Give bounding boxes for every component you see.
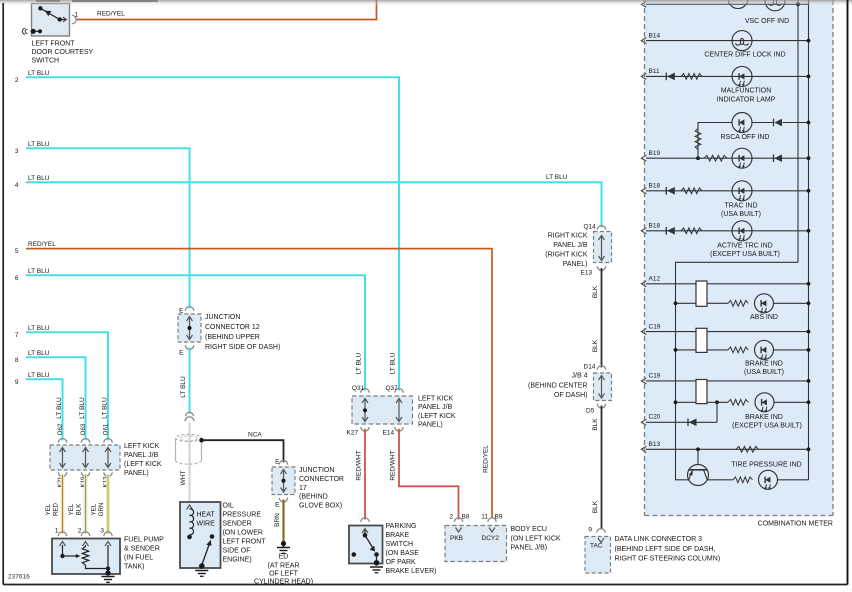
svg-text:GLOVE BOX): GLOVE BOX): [299, 503, 342, 510]
svg-text:9: 9: [15, 379, 19, 386]
svg-text:LT BLU: LT BLU: [546, 174, 568, 181]
svg-text:8: 8: [15, 357, 19, 364]
svg-text:PKB: PKB: [450, 535, 463, 542]
svg-text:BODY ECU: BODY ECU: [511, 526, 547, 533]
svg-text:BLK: BLK: [592, 285, 599, 298]
svg-text:9: 9: [588, 527, 592, 534]
svg-text:B18: B18: [649, 183, 661, 190]
svg-text:E: E: [275, 502, 280, 509]
svg-text:B18: B18: [649, 223, 661, 230]
svg-text:TRAC IND: TRAC IND: [724, 202, 757, 209]
svg-text:(EXCEPT USA BUILT): (EXCEPT USA BUILT): [710, 251, 780, 258]
svg-text:PANEL J/B: PANEL J/B: [553, 242, 588, 249]
svg-text:2: 2: [15, 77, 19, 84]
svg-text:LT BLU: LT BLU: [28, 268, 50, 275]
svg-text:OIL: OIL: [223, 503, 234, 510]
svg-text:TIRE PRESSURE IND: TIRE PRESSURE IND: [731, 462, 801, 469]
svg-text:CONNECTOR 12: CONNECTOR 12: [205, 324, 260, 331]
svg-text:PANEL): PANEL): [563, 261, 588, 268]
svg-text:LEFT FRONT: LEFT FRONT: [32, 40, 76, 47]
svg-text:RSCA OFF IND: RSCA OFF IND: [720, 134, 769, 141]
svg-text:1: 1: [75, 12, 79, 19]
svg-text:5: 5: [15, 248, 19, 255]
svg-text:LT BLU: LT BLU: [56, 397, 63, 419]
svg-text:BRAKE: BRAKE: [386, 532, 410, 539]
svg-text:O63: O63: [80, 423, 87, 435]
svg-text:LT BLU: LT BLU: [28, 175, 50, 182]
svg-text:INDICATOR LAMP: INDICATOR LAMP: [717, 96, 776, 103]
svg-text:2: 2: [449, 514, 453, 521]
svg-text:D5: D5: [586, 408, 595, 415]
svg-text:GRN: GRN: [98, 503, 105, 517]
svg-text:LEFT FRONT: LEFT FRONT: [223, 539, 267, 546]
svg-text:(ON LOWER: (ON LOWER: [223, 530, 263, 537]
svg-text:(IN FUEL: (IN FUEL: [124, 555, 153, 562]
svg-text:LT BLU: LT BLU: [356, 352, 363, 374]
svg-text:E: E: [275, 459, 280, 466]
svg-text:TANK): TANK): [124, 564, 144, 571]
svg-text:Q31: Q31: [352, 385, 365, 392]
svg-text:Q37: Q37: [386, 385, 399, 392]
svg-text:SIDE OF: SIDE OF: [223, 548, 251, 555]
svg-text:O61: O61: [103, 423, 110, 435]
svg-text:SENDER: SENDER: [223, 521, 252, 528]
svg-text:LT BLU: LT BLU: [79, 397, 86, 419]
svg-text:RED/YEL: RED/YEL: [483, 445, 490, 473]
svg-text:BRAKE IND: BRAKE IND: [745, 361, 783, 368]
svg-text:BLK: BLK: [592, 500, 599, 513]
svg-text:(LEFT KICK: (LEFT KICK: [124, 461, 162, 468]
svg-text:DOOR COURTESY: DOOR COURTESY: [32, 49, 94, 56]
svg-text:TAC: TAC: [590, 543, 603, 550]
svg-text:2: 2: [78, 528, 82, 535]
svg-text:WIRE: WIRE: [197, 521, 216, 528]
svg-text:LEFT KICK: LEFT KICK: [124, 443, 160, 450]
svg-text:ACTIVE TRC IND: ACTIVE TRC IND: [717, 242, 773, 249]
svg-text:A12: A12: [649, 276, 661, 283]
svg-text:PRESSURE: PRESSURE: [223, 512, 262, 519]
svg-text:LT BLU: LT BLU: [28, 325, 50, 332]
svg-text:E13: E13: [581, 270, 593, 277]
svg-text:(RIGHT KICK: (RIGHT KICK: [545, 252, 588, 259]
svg-text:CENTER DIFF LOCK IND: CENTER DIFF LOCK IND: [704, 52, 785, 59]
svg-text:COMBINATION METER: COMBINATION METER: [758, 521, 833, 528]
svg-text:PANEL): PANEL): [124, 470, 149, 477]
svg-text:4: 4: [15, 182, 19, 189]
svg-text:(AT REAR: (AT REAR: [267, 562, 299, 569]
svg-text:LT BLU: LT BLU: [180, 376, 187, 398]
svg-text:11: 11: [481, 514, 488, 521]
svg-text:RED/YEL: RED/YEL: [97, 11, 125, 18]
svg-text:O62: O62: [57, 423, 64, 435]
svg-text:LT BLU: LT BLU: [28, 141, 50, 148]
svg-text:BRAKE LEVER): BRAKE LEVER): [386, 568, 437, 575]
svg-text:(USA BUILT): (USA BUILT): [721, 211, 761, 218]
svg-text:(EXCEPT USA BUILT): (EXCEPT USA BUILT): [732, 423, 802, 430]
svg-text:LT BLU: LT BLU: [28, 70, 50, 77]
svg-text:RIGHT KICK: RIGHT KICK: [548, 233, 588, 240]
svg-text:OF PARK: OF PARK: [386, 559, 417, 566]
svg-text:PANEL): PANEL): [418, 422, 443, 429]
svg-text:B14: B14: [649, 32, 661, 39]
svg-text:SWITCH: SWITCH: [32, 57, 60, 64]
svg-text:JUNCTION: JUNCTION: [299, 467, 334, 474]
svg-text:LEFT KICK: LEFT KICK: [418, 396, 454, 403]
svg-text:HEAT: HEAT: [197, 512, 216, 519]
svg-text:C19: C19: [649, 373, 661, 380]
svg-text:WHT: WHT: [180, 471, 187, 486]
svg-text:3: 3: [100, 528, 104, 535]
svg-text:E14: E14: [383, 430, 395, 437]
svg-text:ABS IND: ABS IND: [750, 314, 778, 321]
svg-text:BRN: BRN: [274, 513, 281, 527]
svg-text:FUEL PUMP: FUEL PUMP: [124, 537, 164, 544]
svg-text:ED: ED: [279, 554, 289, 561]
svg-text:6: 6: [15, 275, 19, 282]
svg-text:OF DASH): OF DASH): [554, 392, 587, 399]
svg-text:(BEHIND LEFT SIDE OF DASH,: (BEHIND LEFT SIDE OF DASH,: [615, 546, 716, 553]
svg-text:RED/WHT: RED/WHT: [356, 450, 363, 480]
svg-text:B13: B13: [649, 441, 661, 448]
svg-text:Q14: Q14: [584, 224, 597, 231]
svg-text:(BEHIND CENTER: (BEHIND CENTER: [528, 383, 588, 390]
svg-text:E: E: [179, 350, 184, 357]
svg-text:(BEHIND: (BEHIND: [299, 494, 328, 501]
svg-text:(ON BASE: (ON BASE: [386, 550, 420, 557]
svg-text:LT BLU: LT BLU: [28, 350, 50, 357]
svg-text:B19: B19: [649, 150, 661, 157]
svg-text:& SENDER: & SENDER: [124, 546, 160, 553]
svg-text:J/B 4: J/B 4: [572, 373, 588, 380]
svg-text:3: 3: [15, 148, 19, 155]
svg-text:PARKING: PARKING: [386, 523, 417, 530]
svg-text:PANEL J/B: PANEL J/B: [124, 452, 159, 459]
svg-text:YEL: YEL: [45, 503, 52, 515]
svg-text:C20: C20: [649, 414, 661, 421]
svg-text:SWITCH: SWITCH: [386, 541, 414, 548]
svg-text:K27: K27: [347, 430, 359, 437]
svg-text:BLK: BLK: [76, 503, 83, 516]
svg-text:ENGINE): ENGINE): [223, 557, 252, 564]
svg-text:RIGHT OF STEERING COLUMN): RIGHT OF STEERING COLUMN): [615, 556, 721, 563]
svg-text:RIGHT SIDE OF DASH): RIGHT SIDE OF DASH): [205, 344, 280, 351]
svg-text:PANEL J/B): PANEL J/B): [511, 545, 548, 552]
svg-text:DATA LINK CONNECTOR 3: DATA LINK CONNECTOR 3: [615, 536, 703, 543]
svg-text:D14: D14: [584, 364, 596, 371]
svg-text:MALFUNCTION: MALFUNCTION: [721, 88, 772, 95]
svg-text:VSC OFF IND: VSC OFF IND: [745, 18, 789, 25]
svg-text:CONNECTOR: CONNECTOR: [299, 476, 344, 483]
svg-text:PANEL J/B: PANEL J/B: [418, 404, 453, 411]
svg-text:LT BLU: LT BLU: [28, 372, 50, 379]
svg-text:237616: 237616: [8, 574, 30, 581]
svg-text:(ON LEFT KICK: (ON LEFT KICK: [511, 536, 561, 543]
svg-text:RED/WHT: RED/WHT: [390, 450, 397, 480]
svg-text:LT BLU: LT BLU: [390, 352, 397, 374]
svg-text:BLK: BLK: [592, 339, 599, 352]
svg-text:BRAKE IND: BRAKE IND: [745, 414, 783, 421]
svg-text:(BEHIND UPPER: (BEHIND UPPER: [205, 334, 260, 341]
svg-text:BLK: BLK: [592, 418, 599, 431]
svg-text:RED/YEL: RED/YEL: [28, 241, 56, 248]
svg-text:(USA BUILT): (USA BUILT): [744, 369, 784, 376]
svg-text:RED: RED: [53, 502, 60, 516]
svg-text:(LEFT KICK: (LEFT KICK: [418, 413, 456, 420]
svg-text:OF LEFT: OF LEFT: [269, 571, 299, 578]
svg-text:7: 7: [15, 332, 19, 339]
svg-text:17: 17: [299, 485, 307, 492]
svg-text:YEL: YEL: [68, 503, 75, 515]
svg-text:1: 1: [55, 528, 59, 535]
svg-text:NCA: NCA: [248, 432, 262, 439]
svg-text:YEL: YEL: [91, 503, 98, 515]
svg-text:DCY2: DCY2: [482, 535, 500, 542]
svg-text:C19: C19: [649, 323, 661, 330]
svg-text:JUNCTION: JUNCTION: [205, 314, 240, 321]
svg-text:LT BLU: LT BLU: [102, 397, 109, 419]
svg-text:B11: B11: [649, 68, 660, 75]
